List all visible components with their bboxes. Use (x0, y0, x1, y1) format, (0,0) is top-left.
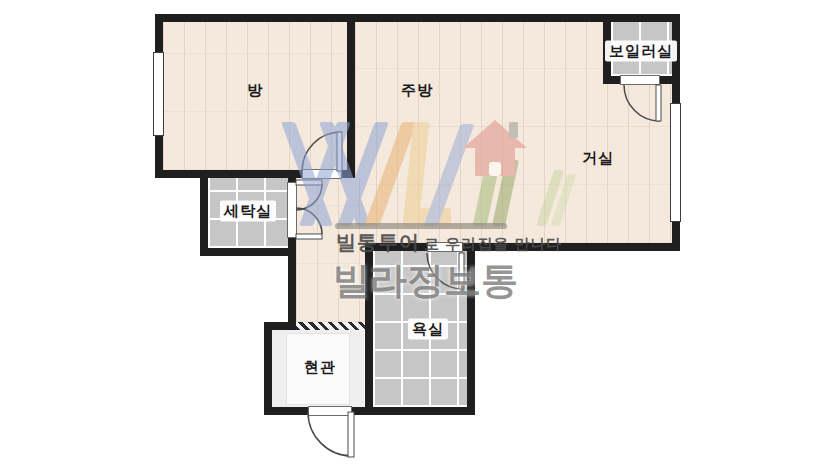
entrance-step-threshold (296, 322, 365, 330)
door-gap-room (302, 169, 342, 179)
wall-room-bottom-a (155, 170, 302, 178)
wall-living-bottom-a (365, 243, 427, 251)
label-room: 방 (247, 81, 263, 100)
wall-entrance-bottom-a (264, 407, 308, 415)
wall-bath-left (365, 243, 373, 415)
window-room-left (153, 52, 164, 136)
wall-entrance-left (264, 322, 272, 415)
wall-room-east (347, 14, 355, 178)
floor-hallway (296, 178, 365, 322)
wall-bath-bottom (365, 407, 475, 415)
door-gap-laundry (287, 182, 297, 238)
label-kitchen: 주방 (401, 81, 433, 100)
label-laundry: 세탁실 (220, 201, 276, 222)
wall-bath-right (467, 243, 475, 415)
label-living-room: 거실 (582, 149, 614, 168)
label-entrance: 현관 (304, 358, 336, 377)
wall-living-bottom-b (463, 243, 680, 251)
wall-entrance-top (264, 322, 296, 330)
door-leaf-entrance (348, 412, 354, 457)
wall-boiler-bottom-a (603, 76, 620, 84)
wall-top (155, 14, 680, 22)
wall-laundry-left (200, 170, 208, 256)
window-living-right (670, 103, 681, 222)
wall-hall-west-b (288, 238, 296, 322)
door-arc-entrance (308, 412, 352, 456)
door-gap-boiler (620, 75, 660, 85)
wall-boiler-bottom-b (660, 76, 680, 84)
wall-laundry-bottom (200, 248, 296, 256)
wall-entrance-bottom-b (352, 407, 373, 415)
door-gap-bathroom (427, 242, 463, 252)
floor-plan: 방 주방 거실 보일러실 세탁실 욕실 현관 빌통투어 로 우리집을 만나다 빌… (0, 0, 840, 472)
door-gap-entrance (308, 406, 352, 416)
label-boiler-room: 보일러실 (605, 41, 677, 62)
label-bathroom: 욕실 (408, 319, 448, 340)
wall-hall-west-a (288, 170, 296, 182)
